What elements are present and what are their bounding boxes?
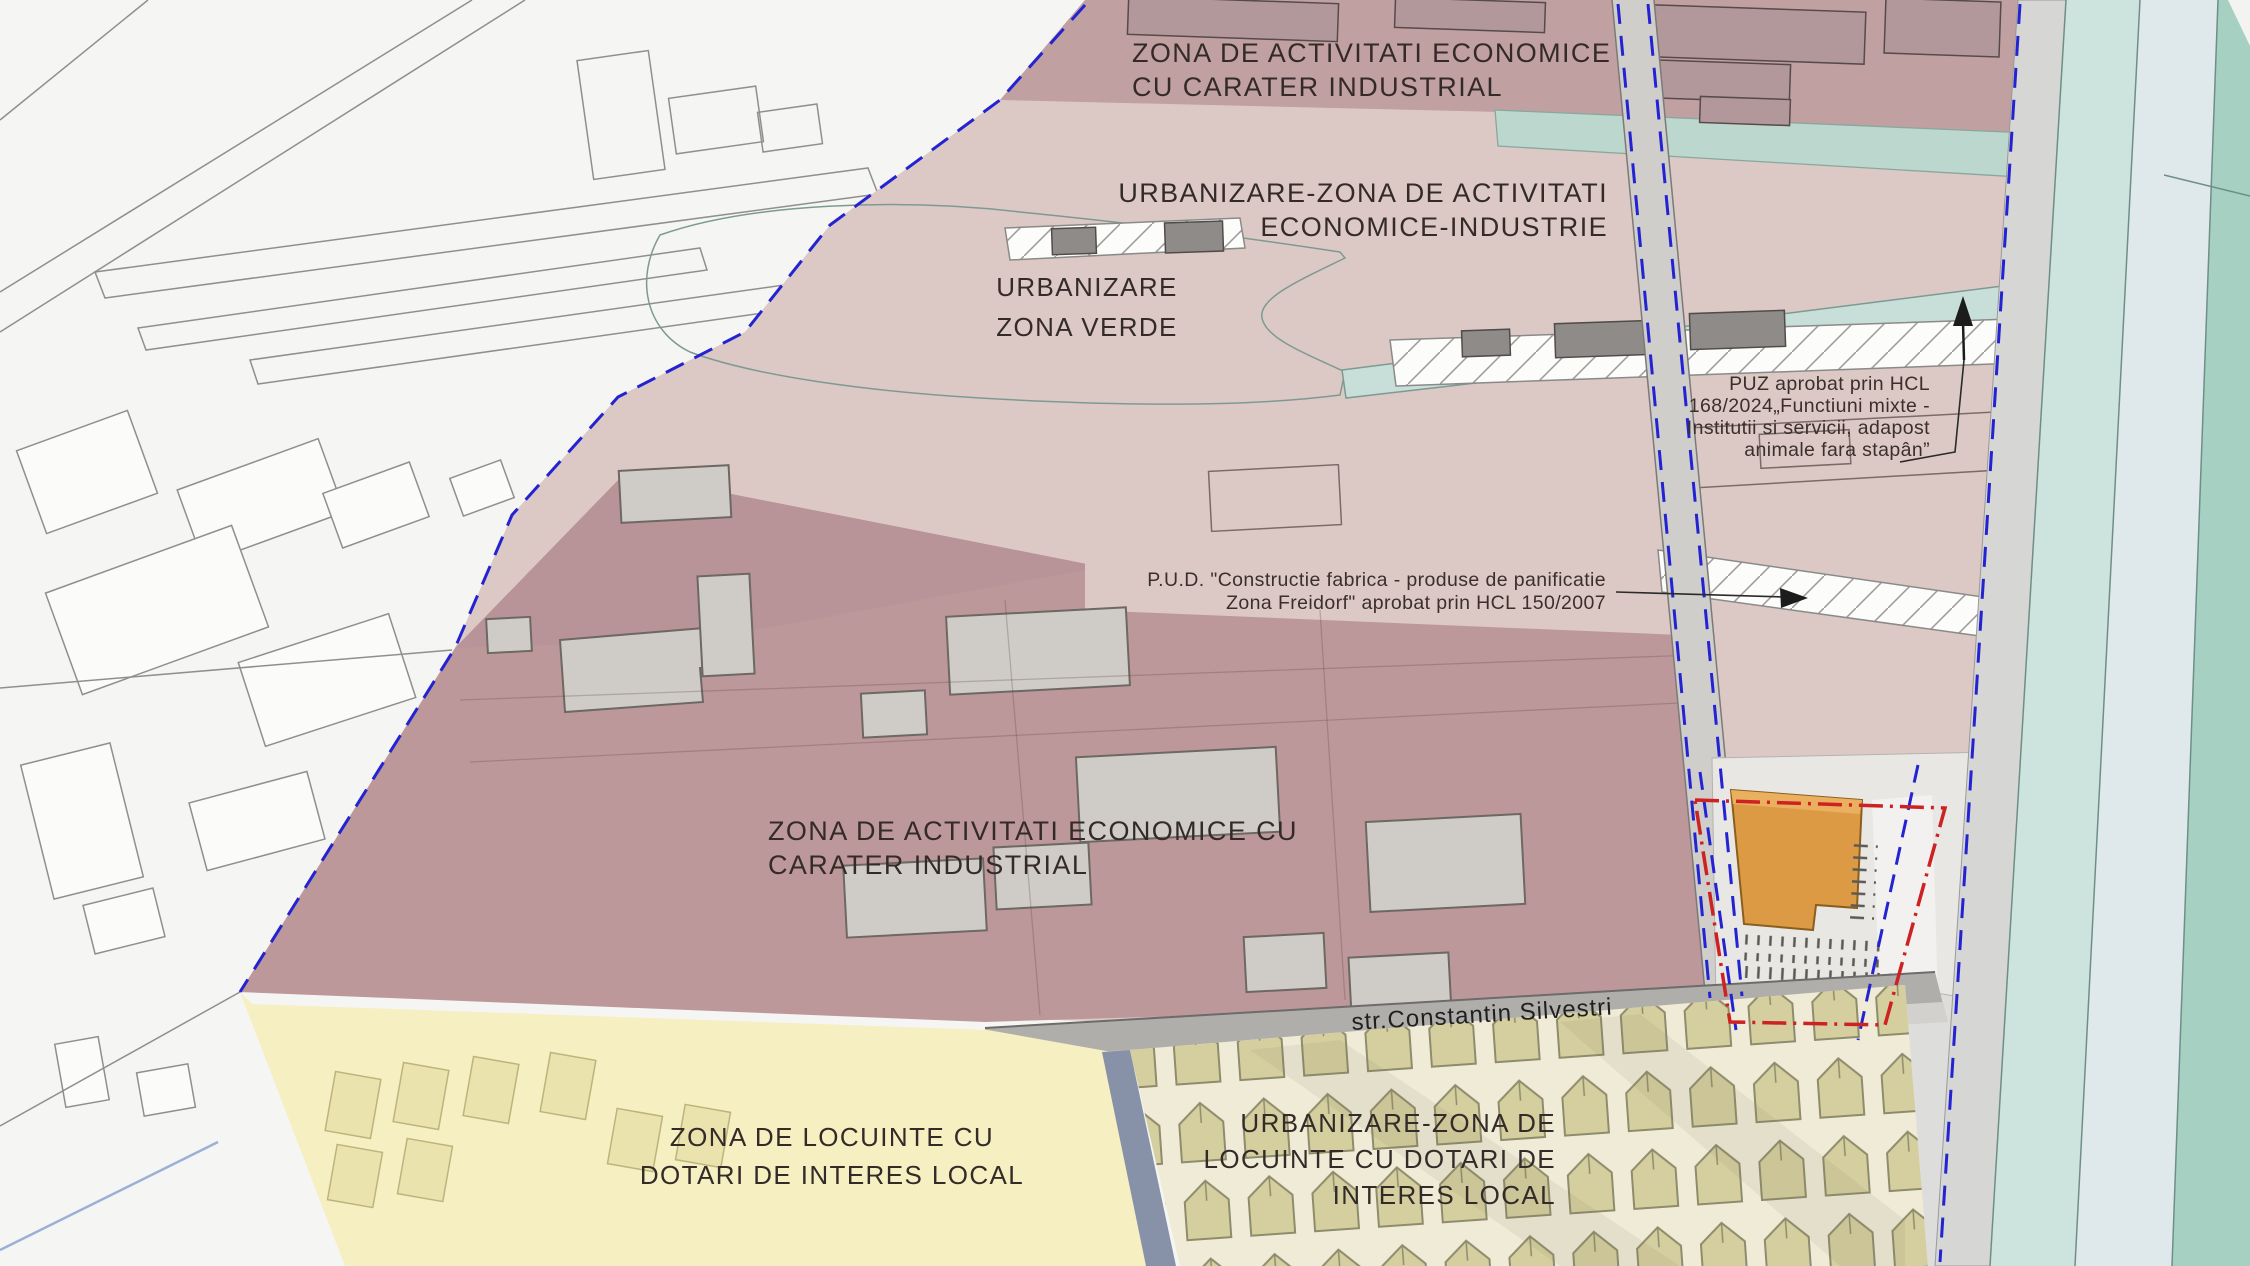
- pud-note-line1: P.U.D. "Constructie fabrica - produse de…: [1147, 569, 1606, 591]
- label-industrial-central-line2: CARATER INDUSTRIAL: [768, 850, 1088, 880]
- label-urbanizare-locuinte-line3: INTERES LOCAL: [1333, 1180, 1556, 1210]
- label-zona-verde-line2: ZONA VERDE: [996, 312, 1178, 342]
- puz-note-line4: animale fara stapân”: [1744, 439, 1930, 461]
- label-industrial-top-line1: ZONA DE ACTIVITATI ECONOMICE: [1132, 38, 1611, 68]
- label-urbanizare-industrie-line1: URBANIZARE-ZONA DE ACTIVITATI: [1118, 178, 1608, 208]
- label-industrial-central-line1: ZONA DE ACTIVITATI ECONOMICE CU: [768, 816, 1298, 846]
- puz-note-line1: PUZ aprobat prin HCL: [1729, 373, 1930, 395]
- label-zona-verde-line1: URBANIZARE: [996, 272, 1178, 302]
- map-canvas: PUZ aprobat prin HCL 168/2024„Functiuni …: [0, 0, 2250, 1266]
- zoning-plan-map: PUZ aprobat prin HCL 168/2024„Functiuni …: [0, 0, 2250, 1266]
- stairs: [1850, 837, 1878, 924]
- label-urbanizare-locuinte-line1: URBANIZARE-ZONA DE: [1240, 1108, 1556, 1138]
- puz-note-line2: 168/2024„Functiuni mixte -: [1689, 395, 1930, 417]
- label-locuinte-line2: DOTARI DE INTERES LOCAL: [640, 1160, 1024, 1190]
- puz-note-line3: Institutii si servicii, adapost: [1687, 417, 1930, 439]
- label-locuinte-line1: ZONA DE LOCUINTE CU: [670, 1122, 994, 1152]
- label-urbanizare-industrie-line2: ECONOMICE-INDUSTRIE: [1260, 212, 1608, 242]
- label-urbanizare-locuinte-line2: LOCUINTE CU DOTARI DE: [1204, 1144, 1557, 1174]
- label-industrial-top-line2: CU CARATER INDUSTRIAL: [1132, 72, 1503, 102]
- pud-note-line2: Zona Freidorf" aprobat prin HCL 150/2007: [1226, 592, 1606, 614]
